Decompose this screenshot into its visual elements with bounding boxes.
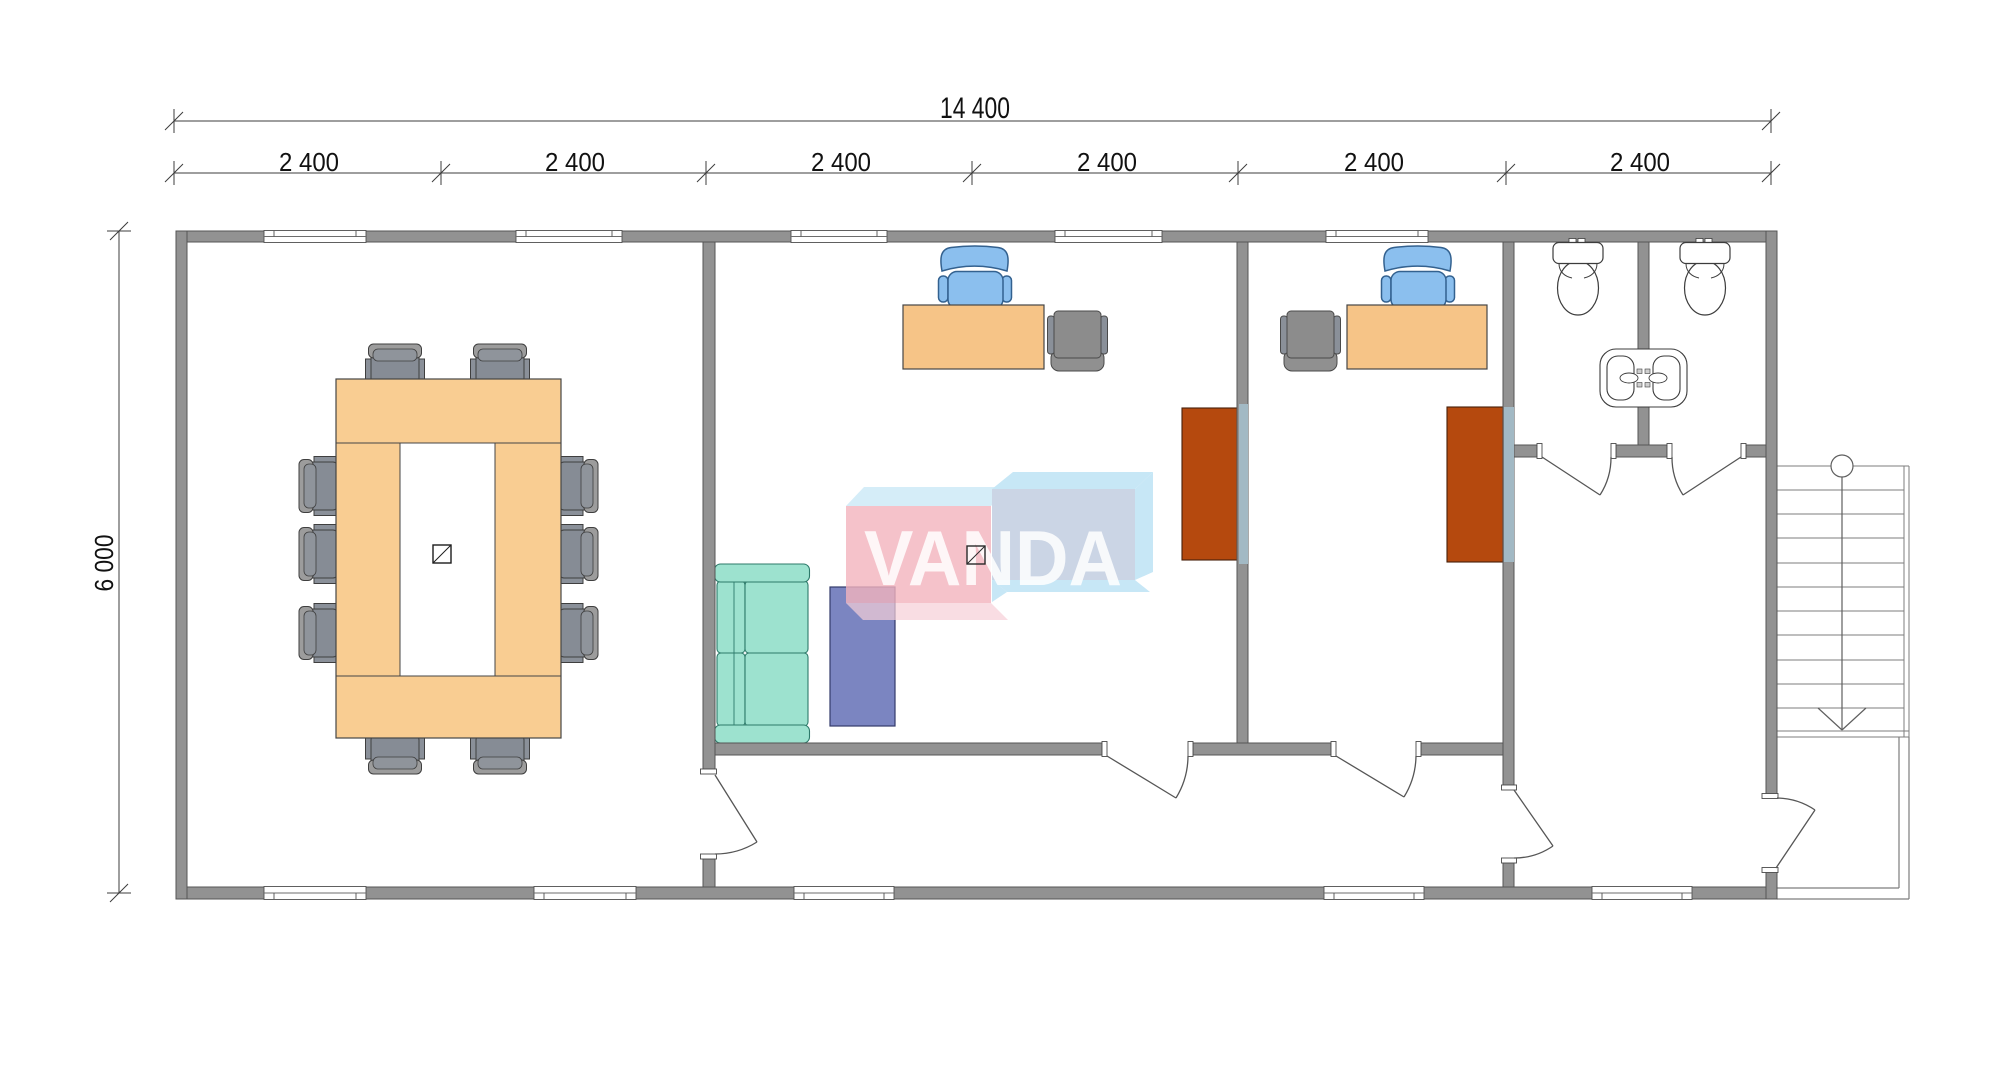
- svg-text:2 400: 2 400: [279, 147, 339, 177]
- svg-text:VANDA: VANDA: [864, 514, 1122, 602]
- svg-text:2 400: 2 400: [1610, 147, 1670, 177]
- svg-text:6 000: 6 000: [89, 535, 119, 592]
- svg-text:2 400: 2 400: [545, 147, 605, 177]
- svg-text:2 400: 2 400: [1077, 147, 1137, 177]
- svg-text:2 400: 2 400: [811, 147, 871, 177]
- svg-text:14 400: 14 400: [940, 92, 1010, 125]
- svg-text:2 400: 2 400: [1344, 147, 1404, 177]
